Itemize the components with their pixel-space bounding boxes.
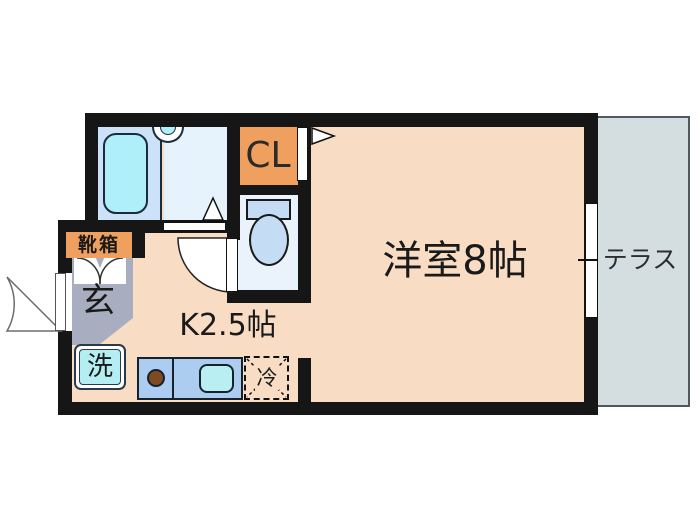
bathtub-icon — [103, 133, 148, 214]
wall-stub-shoebox — [130, 233, 145, 258]
western-room-label: 洋室8帖 — [355, 237, 555, 285]
closet-door-leaf — [297, 127, 308, 181]
wall-stub-kitchen — [298, 358, 311, 402]
washer-label: 洗 — [87, 354, 113, 380]
bathroom-folding-door-icon — [200, 196, 228, 222]
shoe-cabinet-icon — [74, 256, 126, 284]
entry-door-leaf — [55, 273, 66, 331]
refrigerator-label-wrap: 冷 — [255, 366, 279, 390]
washer-inner: 洗 — [79, 349, 121, 385]
wall-toilet-bottom — [227, 290, 311, 303]
shoe-box-plate: 靴箱 — [66, 232, 132, 258]
entrance-label-text: 玄 — [81, 284, 115, 318]
closet-label: CL — [238, 133, 298, 179]
refrigerator-space: 冷 — [244, 356, 289, 400]
wall-left-upper — [85, 113, 98, 233]
wall-top — [85, 113, 598, 127]
shoe-cabinet-doors-icon — [74, 256, 126, 284]
bathroom-threshold — [164, 221, 225, 232]
kitchen-label-text: K2.5帖 — [179, 311, 276, 341]
washer-box: 洗 — [74, 344, 126, 390]
window-center-divider — [585, 259, 598, 261]
toilet-bowl-icon — [249, 214, 289, 266]
toilet-door-leaf — [226, 238, 238, 292]
shoe-box-label: 靴箱 — [78, 236, 120, 255]
western-room-label-text: 洋室8帖 — [382, 241, 527, 281]
floorplan-canvas: 靴箱 洗 冷 洋室8帖 K2.5帖 テラス CL 玄 — [0, 0, 700, 525]
kitchen-counter-divider — [172, 358, 174, 399]
closet-door-swing-icon — [311, 126, 337, 146]
closet-label-text: CL — [245, 138, 290, 174]
stove-burner-icon — [147, 369, 165, 387]
entrance-label: 玄 — [78, 281, 118, 321]
terrace-label: テラス — [600, 245, 680, 273]
window-tick — [578, 259, 586, 261]
terrace-label-text: テラス — [603, 247, 678, 272]
kitchen-sink-icon — [199, 364, 234, 393]
kitchen-label: K2.5帖 — [168, 308, 288, 344]
wall-bottom — [58, 402, 598, 415]
refrigerator-label: 冷 — [257, 368, 278, 389]
